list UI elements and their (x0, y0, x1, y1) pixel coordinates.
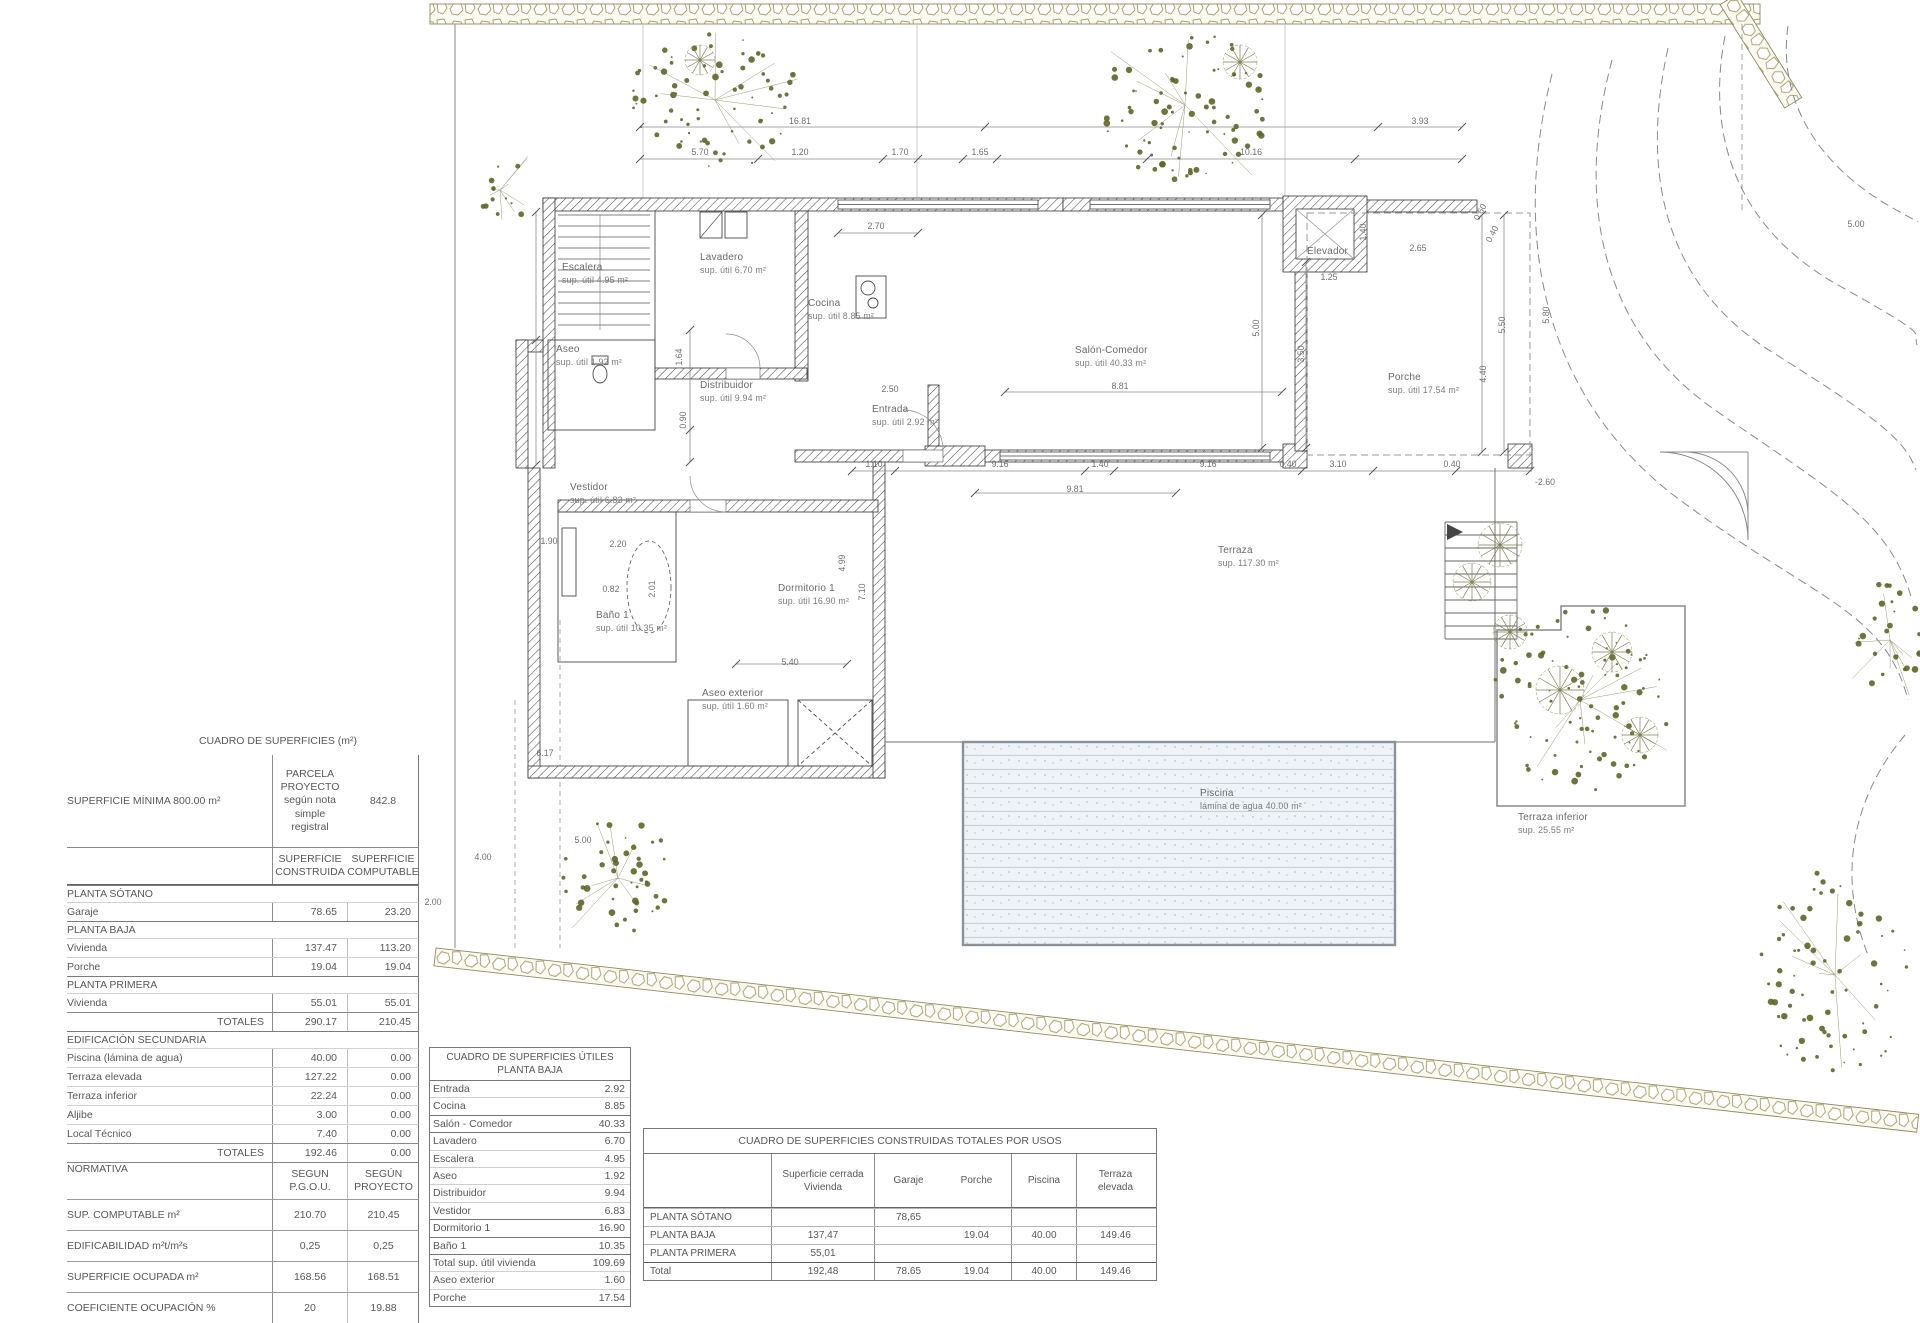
table-row: Total sup. útil vivienda109.69 (430, 1254, 630, 1271)
col-header-terraza: Terraza elevada (1076, 1154, 1154, 1207)
row-value: 0,25 (272, 1231, 347, 1261)
row-value: 192.46 (272, 1144, 347, 1162)
col-header-piscina: Piscina (1011, 1154, 1076, 1207)
row-label: TOTALES (67, 1144, 272, 1162)
row-value (771, 1209, 874, 1226)
table-row: Aljibe3.000.00 (67, 1105, 419, 1124)
row-label: PLANTA PRIMERA (644, 1245, 771, 1262)
table-row: SUP. COMPUTABLE m²210.70210.45 (67, 1199, 419, 1230)
row-value: SEGUN P.G.O.U. (272, 1163, 347, 1199)
row-label: Local Técnico (67, 1125, 272, 1143)
row-value: 3.00 (272, 1106, 347, 1124)
row-label: Porche (67, 958, 272, 976)
row-value: 19.04 (347, 958, 419, 976)
row-value: 0.00 (347, 1144, 419, 1162)
totals-by-use-headers: Superficie cerrada Vivienda Garaje Porch… (644, 1154, 1156, 1208)
row-label: PLANTA SÓTANO (644, 1209, 771, 1226)
row-value: 137.47 (272, 939, 347, 957)
table-row: Dormitorio 116.90 (430, 1219, 630, 1236)
table-row: PLANTA PRIMERA55,01 (644, 1244, 1156, 1262)
row-value: 55.01 (347, 994, 419, 1012)
row-value: 0.00 (347, 1125, 419, 1143)
table-row: PLANTA BAJA (67, 921, 419, 938)
surfaces-column-headers: SUPERFICIE CONSTRUIDA SUPERFICIE COMPUTA… (67, 848, 419, 885)
table-row: Distribuidor9.94 (430, 1184, 630, 1201)
row-value: 20 (272, 1293, 347, 1323)
col-header-vivienda: Superficie cerrada Vivienda (771, 1154, 874, 1207)
table-row: EDIFICACIÓN SECUNDARIA (67, 1031, 419, 1048)
row-label: EDIFICABILIDAD m²t/m²s (67, 1231, 272, 1261)
table-row: Total192,4878.6519.0440.00149.46 (644, 1262, 1156, 1280)
table-row: Terraza elevada127.220.00 (67, 1067, 419, 1086)
row-label: NORMATIVA (67, 1163, 272, 1199)
table-row: Local Técnico7.400.00 (67, 1124, 419, 1143)
row-value: 9.94 (565, 1185, 625, 1201)
row-value: 168.51 (347, 1262, 419, 1292)
row-label: SUP. COMPUTABLE m² (67, 1200, 272, 1230)
row-label: Garaje (67, 903, 272, 921)
row-label: Total sup. útil vivienda (433, 1255, 565, 1271)
row-value: 40.00 (272, 1049, 347, 1067)
row-value: 149.46 (1076, 1227, 1154, 1244)
row-label: Terraza elevada (67, 1068, 272, 1086)
table-row: TOTALES192.460.00 (67, 1143, 419, 1162)
row-value (874, 1227, 942, 1244)
table-row: NORMATIVASEGUN P.G.O.U.SEGÚN PROYECTO (67, 1162, 419, 1199)
row-label: Cocina (433, 1098, 565, 1114)
row-value (1076, 1245, 1154, 1262)
row-value: 78,65 (874, 1209, 942, 1226)
row-value: 78.65 (272, 903, 347, 921)
totals-by-use-title: CUADRO DE SUPERFICIES CONSTRUIDAS TOTALE… (644, 1129, 1156, 1154)
row-value: 19.04 (272, 958, 347, 976)
table-row: Porche19.0419.04 (67, 957, 419, 976)
house-walls (516, 196, 1532, 778)
row-label: TOTALES (67, 1013, 272, 1031)
table-row: Porche17.54 (430, 1289, 630, 1306)
row-value: 2.92 (565, 1081, 625, 1097)
row-label: Dormitorio 1 (433, 1220, 565, 1236)
useful-surfaces-table: CUADRO DE SUPERFICIES ÚTILES PLANTA BAJA… (429, 1047, 631, 1307)
row-value: 0.00 (347, 1106, 419, 1124)
row-value: 6.70 (565, 1133, 625, 1149)
row-value: 192,48 (771, 1263, 874, 1280)
row-value: 16.90 (565, 1220, 625, 1236)
totals-by-use-table: CUADRO DE SUPERFICIES CONSTRUIDAS TOTALE… (643, 1128, 1157, 1281)
row-value: 10.35 (565, 1238, 625, 1254)
table-row: Vivienda55.0155.01 (67, 993, 419, 1012)
row-value: 22.24 (272, 1087, 347, 1105)
row-value: 137,47 (771, 1227, 874, 1244)
table-row: Lavadero6.70 (430, 1132, 630, 1149)
row-value: 4.95 (565, 1151, 625, 1167)
row-label: Escalera (433, 1151, 565, 1167)
row-value: 23.20 (347, 903, 419, 921)
stairs (558, 215, 1517, 639)
row-value: 78.65 (874, 1263, 942, 1280)
row-label: Aseo (433, 1168, 565, 1184)
parcela-value: 842.8 (347, 795, 419, 807)
surfaces-table-rows: PLANTA SÓTANOGaraje78.6523.20PLANTA BAJA… (67, 885, 419, 1323)
row-value: 17.54 (565, 1290, 625, 1306)
table-row: TOTALES290.17210.45 (67, 1012, 419, 1031)
row-value (942, 1209, 1011, 1226)
table-row: PLANTA SÓTANO (67, 885, 419, 902)
row-value: 0,25 (347, 1231, 419, 1261)
stone-wall-bands (430, 0, 1919, 1132)
row-label: Distribuidor (433, 1185, 565, 1201)
row-value: 0.00 (347, 1068, 419, 1086)
row-value: 19.88 (347, 1293, 419, 1323)
row-value: 113.20 (347, 939, 419, 957)
row-value: 40.00 (1011, 1227, 1076, 1244)
row-value: 6.83 (565, 1203, 625, 1219)
table-row: Terraza inferior22.240.00 (67, 1086, 419, 1105)
row-value: 40.00 (1011, 1263, 1076, 1280)
row-value: 210.45 (347, 1013, 419, 1031)
row-value (1076, 1209, 1154, 1226)
row-value: 210.45 (347, 1200, 419, 1230)
table-row: SUPERFICIE OCUPADA m²168.56168.51 (67, 1261, 419, 1292)
row-value (1011, 1209, 1076, 1226)
row-label: Piscina (lámina de agua) (67, 1049, 272, 1067)
parcela-label: SUPERFICIE MÍNIMA 800.00 m² (67, 795, 272, 807)
totals-by-use-rows: PLANTA SÓTANO78,65PLANTA BAJA137,4719.04… (644, 1208, 1156, 1280)
row-label: Total (644, 1263, 771, 1280)
row-value: 40.33 (565, 1116, 625, 1132)
row-value: 168.56 (272, 1262, 347, 1292)
row-value: 19.04 (942, 1227, 1011, 1244)
row-value: 1.92 (565, 1168, 625, 1184)
surfaces-table-title: CUADRO DE SUPERFICIES (m²) (67, 735, 419, 755)
row-label: Vestidor (433, 1203, 565, 1219)
table-row: Salón - Comedor40.33 (430, 1115, 630, 1132)
row-value (1011, 1245, 1076, 1262)
row-label: Aseo exterior (433, 1272, 565, 1288)
table-row: PLANTA PRIMERA (67, 976, 419, 993)
row-value: 1.60 (565, 1272, 625, 1288)
row-value: 149.46 (1076, 1263, 1154, 1280)
row-label: Vivienda (67, 994, 272, 1012)
useful-surfaces-rows: Entrada2.92Cocina8.85Salón - Comedor40.3… (430, 1081, 630, 1306)
row-label: COEFICIENTE OCUPACIÓN % (67, 1293, 272, 1323)
row-label: Aljibe (67, 1106, 272, 1124)
row-value: 290.17 (272, 1013, 347, 1031)
row-value (942, 1245, 1011, 1262)
row-value: 19.04 (942, 1263, 1011, 1280)
row-label: Terraza inferior (67, 1087, 272, 1105)
elevator-shaft (1296, 209, 1354, 259)
row-label: Baño 1 (433, 1238, 565, 1254)
parcela-source: PARCELA PROYECTO según nota simple regis… (272, 755, 347, 847)
table-row: Escalera4.95 (430, 1150, 630, 1167)
swimming-pool (963, 742, 1395, 945)
interior-partitions (548, 211, 886, 766)
table-row: EDIFICABILIDAD m²t/m²s0,250,25 (67, 1230, 419, 1261)
topography-curves (1535, 26, 1918, 955)
parcela-row: SUPERFICIE MÍNIMA 800.00 m² PARCELA PROY… (67, 755, 419, 848)
table-row: Vivienda137.47113.20 (67, 938, 419, 957)
surfaces-table: CUADRO DE SUPERFICIES (m²) SUPERFICIE MÍ… (67, 735, 419, 1323)
row-value: 127.22 (272, 1068, 347, 1086)
table-row: Baño 110.35 (430, 1237, 630, 1254)
row-label: Porche (433, 1290, 565, 1306)
row-label: Entrada (433, 1081, 565, 1097)
col-header-garaje: Garaje (874, 1154, 942, 1207)
row-value: 55,01 (771, 1245, 874, 1262)
row-value: 55.01 (272, 994, 347, 1012)
table-row: Vestidor6.83 (430, 1202, 630, 1219)
row-value: 8.85 (565, 1098, 625, 1114)
col-header-porche: Porche (942, 1154, 1011, 1207)
useful-surfaces-title: CUADRO DE SUPERFICIES ÚTILES PLANTA BAJA (430, 1048, 630, 1081)
table-row: Garaje78.6523.20 (67, 902, 419, 921)
row-value: 210.70 (272, 1200, 347, 1230)
row-value: 0.00 (347, 1049, 419, 1067)
table-row: PLANTA BAJA137,4719.0440.00149.46 (644, 1226, 1156, 1244)
row-label: Vivienda (67, 939, 272, 957)
table-row: Piscina (lámina de agua)40.000.00 (67, 1048, 419, 1067)
row-value: 109.69 (565, 1255, 625, 1271)
row-label: Lavadero (433, 1133, 565, 1149)
row-value (874, 1245, 942, 1262)
row-value: SEGÚN PROYECTO (347, 1163, 419, 1199)
row-label: Salón - Comedor (433, 1116, 565, 1132)
table-row: PLANTA SÓTANO78,65 (644, 1208, 1156, 1226)
table-row: Aseo1.92 (430, 1167, 630, 1184)
col-header-computable: SUPERFICIE COMPUTABLE (347, 848, 419, 884)
terrace-and-pool (885, 452, 1748, 945)
row-value: 7.40 (272, 1125, 347, 1143)
table-row: Cocina8.85 (430, 1097, 630, 1114)
col-header-construida: SUPERFICIE CONSTRUIDA (272, 848, 347, 884)
row-value: 0.00 (347, 1087, 419, 1105)
row-label: PLANTA BAJA (644, 1227, 771, 1244)
table-row: Entrada2.92 (430, 1081, 630, 1097)
table-row: COEFICIENTE OCUPACIÓN %2019.88 (67, 1292, 419, 1323)
row-label: SUPERFICIE OCUPADA m² (67, 1262, 272, 1292)
door-arcs (690, 334, 943, 512)
blueprint-sheet: { "tables": { "superficies": { "title": … (0, 0, 1920, 1280)
